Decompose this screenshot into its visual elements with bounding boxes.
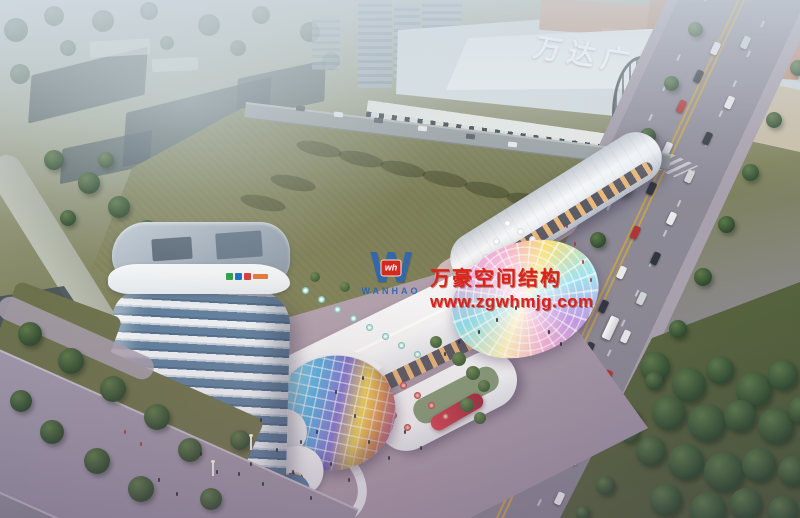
watermark-url: www.zgwhmjg.com — [430, 292, 594, 312]
wanhao-logo-icon: W wh WANHAO — [360, 248, 422, 296]
watermark-text: 万豪空间结构 www.zgwhmjg.com — [430, 248, 594, 312]
watermark: W wh WANHAO 万豪空间结构 www.zgwhmjg.com — [360, 248, 594, 312]
watermark-company: 万豪空间结构 — [430, 262, 594, 291]
logo-badge: wh — [381, 260, 402, 277]
logo-name: WANHAO — [360, 286, 422, 296]
aerial-rendering-scene: 万达广场 — [0, 0, 800, 518]
